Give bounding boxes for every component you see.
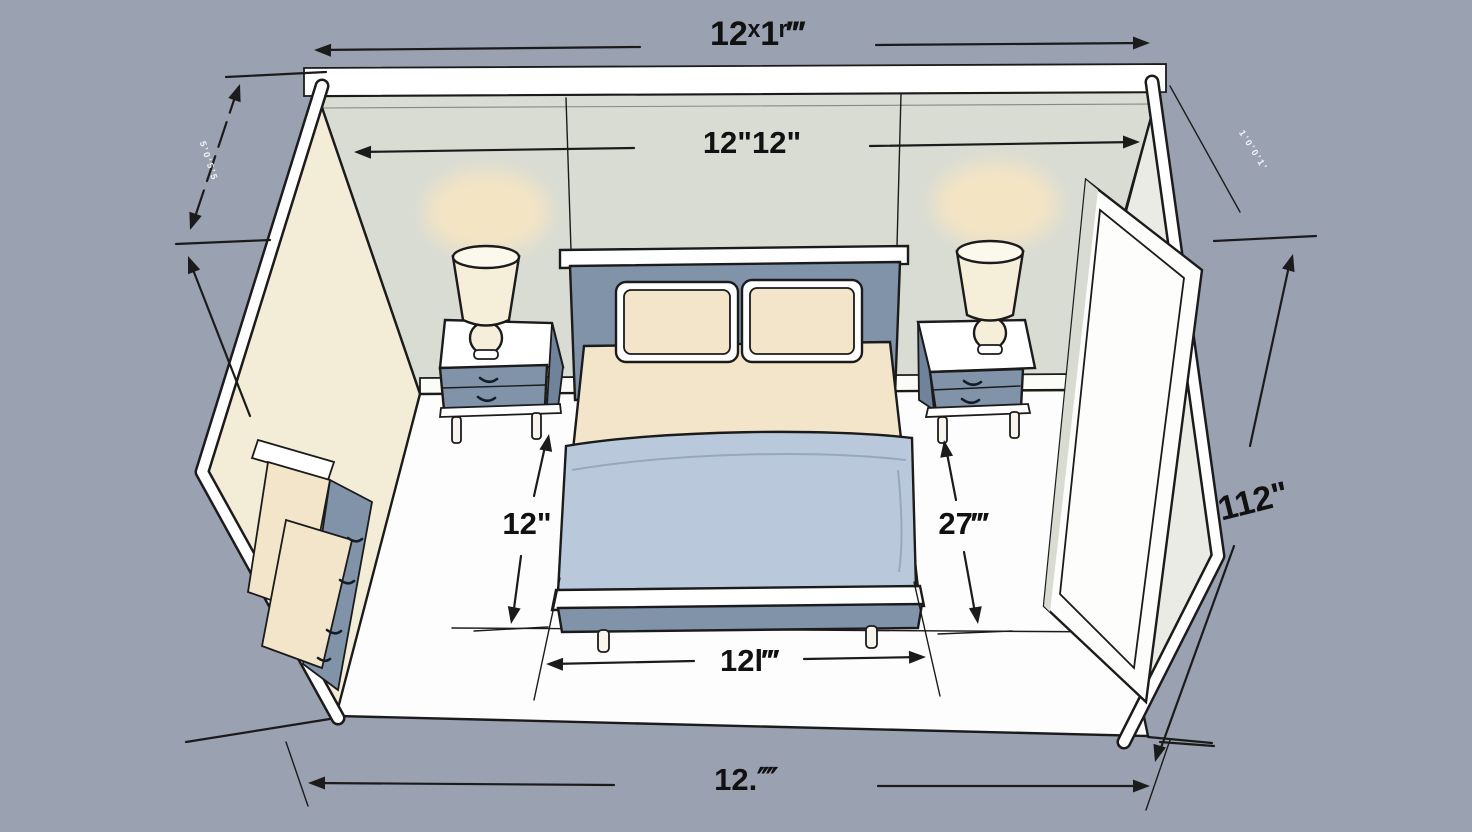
- nightstand-leg: [1010, 412, 1019, 438]
- lamp-base-ring: [474, 350, 498, 359]
- bedroom-diagram: 12ˣ1ʳ‴ 12"12" 12" 27‴: [0, 0, 1472, 832]
- lamp-shade-top: [453, 246, 519, 268]
- bed: [552, 246, 924, 652]
- pillow-body: [624, 290, 730, 354]
- lamp-shade-top: [957, 241, 1023, 263]
- dim-label-top-inner: 12"12": [703, 125, 801, 160]
- dim-label-top-outer: 12ˣ1ʳ‴: [710, 15, 806, 53]
- dim-label-bed-width: 12l‴: [720, 643, 780, 678]
- pillow-left: [616, 282, 738, 362]
- nightstand-leg: [452, 417, 461, 443]
- scene-canvas: 12ˣ1ʳ‴ 12"12" 12" 27‴: [0, 0, 1472, 832]
- lamp-glow-right: [934, 162, 1058, 246]
- lamp-base-ring: [978, 345, 1002, 354]
- dim-label-bottom: 12.⁗: [714, 762, 778, 797]
- nightstand-leg: [938, 417, 947, 443]
- bed-leg: [598, 630, 609, 652]
- nightstand-leg: [532, 413, 541, 439]
- lamp-glow-left: [425, 170, 549, 254]
- dim-label-bed-right: 27‴: [938, 506, 989, 541]
- pillow-body: [750, 288, 854, 354]
- crown-trim: [304, 64, 1166, 96]
- dim-label-bed-left: 12": [502, 506, 551, 541]
- bed-leg: [866, 626, 877, 648]
- pillow-right: [742, 280, 862, 362]
